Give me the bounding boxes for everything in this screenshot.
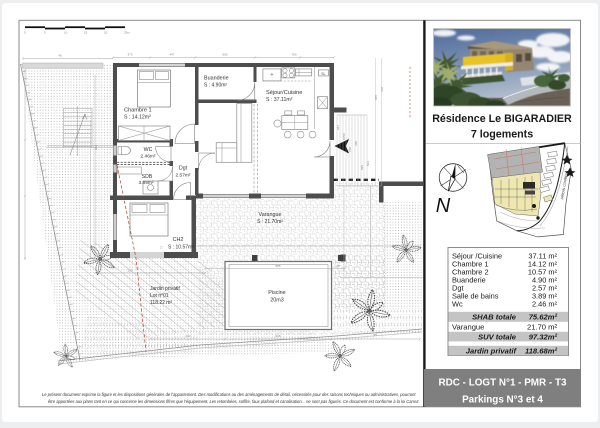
svg-text:Résidence Le BIGARADIER: Résidence Le BIGARADIER [432, 113, 572, 125]
svg-text:160: 160 [127, 269, 132, 273]
svg-text:21.70 m²: 21.70 m² [527, 323, 557, 332]
svg-text:047: 047 [336, 125, 340, 130]
svg-text:595: 595 [360, 165, 364, 170]
svg-text:20m3: 20m3 [270, 298, 284, 304]
svg-text:Jardin privatif: Jardin privatif [150, 286, 180, 292]
svg-text:Chambre 1: Chambre 1 [124, 108, 152, 114]
svg-text:RDC - LOGT N°1 - PMR - T3: RDC - LOGT N°1 - PMR - T3 [439, 378, 567, 389]
svg-text:SUV totale: SUV totale [478, 332, 517, 341]
svg-text:210: 210 [348, 147, 352, 152]
svg-text:Parkings N°3 et 4: Parkings N°3 et 4 [462, 395, 543, 406]
svg-text:CH2: CH2 [173, 237, 184, 243]
svg-text:045: 045 [374, 95, 378, 100]
svg-text:Lot n°01: Lot n°01 [150, 293, 169, 299]
svg-text:7 logements: 7 logements [471, 129, 533, 141]
svg-text:45: 45 [58, 54, 62, 58]
svg-text:370: 370 [127, 53, 132, 57]
svg-text:301: 301 [94, 145, 98, 150]
svg-text:15: 15 [84, 31, 88, 35]
svg-text:Buanderie: Buanderie [204, 76, 229, 82]
svg-text:103: 103 [185, 334, 190, 338]
svg-text:S : 14.12m²: S : 14.12m² [124, 115, 151, 121]
svg-text:118.68m²: 118.68m² [525, 346, 557, 355]
svg-text:20: 20 [104, 31, 108, 35]
svg-text:Wc: Wc [452, 300, 463, 309]
svg-text:318: 318 [275, 334, 280, 338]
svg-text:340: 340 [354, 141, 358, 146]
svg-text:Le présent document exprime la: Le présent document exprime la figure et… [42, 392, 416, 397]
svg-text:885: 885 [275, 264, 280, 268]
svg-text:10: 10 [64, 31, 68, 35]
svg-text:S : 37.11m²: S : 37.11m² [266, 97, 293, 103]
svg-text:1050: 1050 [342, 133, 346, 140]
svg-text:Piscine: Piscine [268, 290, 285, 296]
svg-text:Dgt: Dgt [179, 166, 188, 172]
svg-text:55: 55 [373, 333, 377, 337]
svg-text:2.46 m²: 2.46 m² [532, 300, 558, 309]
svg-text:25m: 25m [124, 31, 130, 35]
svg-text:être apportées aux plans tant: être apportées aux plans tant en ce qui … [48, 399, 420, 404]
svg-text:605: 605 [222, 53, 227, 57]
svg-text:N: N [436, 195, 451, 217]
svg-text:Séjour/Cuisine: Séjour/Cuisine [266, 90, 302, 96]
svg-text:97.32m²: 97.32m² [529, 332, 558, 341]
svg-text:75.62m²: 75.62m² [529, 313, 558, 322]
svg-text:780: 780 [291, 53, 296, 57]
svg-text:3.89m²: 3.89m² [139, 180, 154, 186]
svg-text:S : 4.90m²: S : 4.90m² [204, 83, 227, 89]
svg-text:S : 21.70m²: S : 21.70m² [257, 219, 283, 225]
svg-text:22: 22 [336, 264, 340, 268]
svg-text:BL: BL [322, 72, 326, 76]
svg-text:Varangue: Varangue [259, 212, 282, 218]
svg-text:447: 447 [169, 53, 174, 57]
svg-text:Jardin privatif: Jardin privatif [466, 346, 518, 355]
svg-text:2.57m²: 2.57m² [176, 173, 191, 179]
svg-text:WC: WC [144, 147, 153, 153]
svg-text:SDB: SDB [142, 174, 153, 180]
svg-text:2.46m²: 2.46m² [141, 154, 156, 160]
svg-text:SHAB totale: SHAB totale [472, 313, 517, 322]
svg-text:118.22 m²: 118.22 m² [150, 300, 172, 306]
svg-text:591: 591 [366, 161, 370, 166]
svg-text:318: 318 [380, 87, 384, 92]
svg-text:Varangue: Varangue [452, 323, 484, 332]
svg-text:S : 10.57m²: S : 10.57m² [168, 245, 194, 251]
